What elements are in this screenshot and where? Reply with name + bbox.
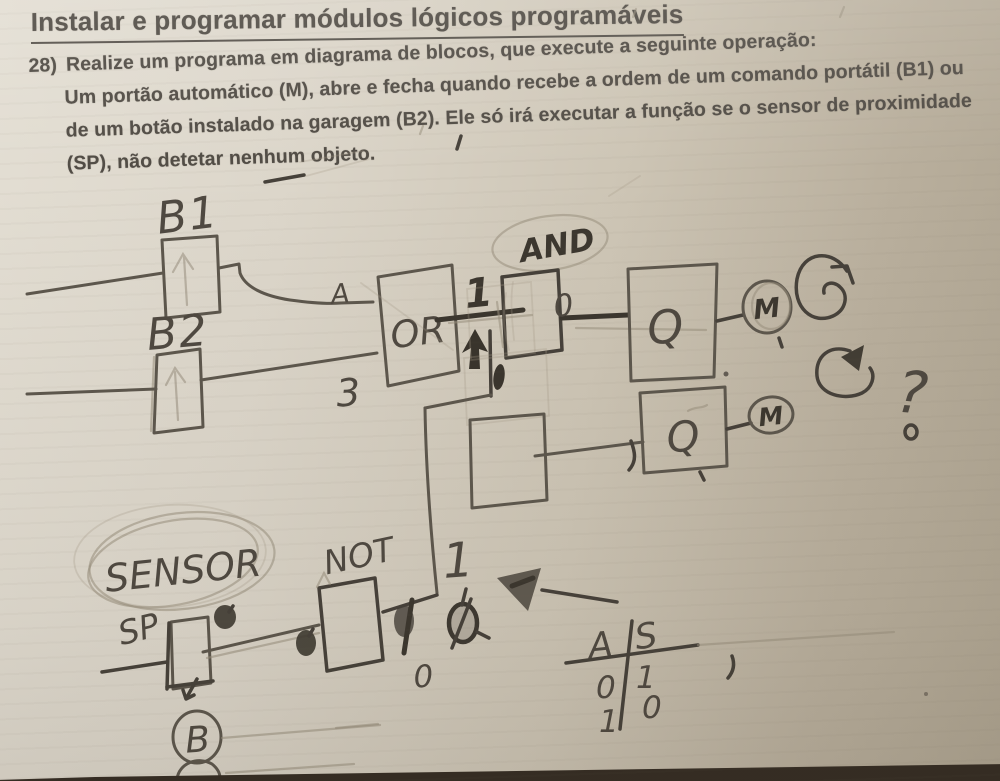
not-output-zero-label: 0 xyxy=(412,658,434,695)
bold-up-arrow-icon xyxy=(462,329,488,369)
stray-faint-3 xyxy=(609,176,640,196)
stray-tick-1 xyxy=(420,126,423,134)
stray-dash xyxy=(265,175,304,182)
b-circle-label: B xyxy=(184,719,212,762)
stray-tick-3 xyxy=(633,9,636,17)
or-input-a-label: A xyxy=(327,278,351,311)
m1-tick xyxy=(779,338,782,347)
stray-faint-1 xyxy=(306,159,369,176)
stray-tick-2 xyxy=(457,136,461,149)
and-second-input-wire xyxy=(490,331,491,396)
left-arrow-tail xyxy=(542,590,617,602)
sp-down-arrow-icon xyxy=(183,679,197,699)
question-mark: ? xyxy=(894,358,931,428)
branch-jog-wire xyxy=(425,395,491,408)
clockwise-arrowhead-icon xyxy=(832,266,853,283)
b1-arrow-icon xyxy=(173,254,193,305)
second-circle-line xyxy=(226,764,354,773)
q1-label: Q xyxy=(645,299,686,356)
empty-block xyxy=(470,414,547,508)
and-label: AND xyxy=(514,221,598,270)
m1-label: M xyxy=(752,292,782,326)
stray-faint-2 xyxy=(300,151,363,162)
b1-input-group: B1 A xyxy=(27,186,373,318)
hand-drawn-diagram: B1 A B2 3 OR xyxy=(0,0,1000,781)
truth-table-r2a: 1 xyxy=(599,704,619,740)
branch-wire-group: 1 xyxy=(425,395,491,593)
truth-table-hline-extension xyxy=(698,632,894,645)
b2-input-group: B2 3 xyxy=(27,305,377,433)
not-label: NOT xyxy=(320,529,400,582)
q2-input-hook xyxy=(629,441,635,470)
and-output-label: 0 xyxy=(552,287,575,325)
stray-dot-2 xyxy=(924,692,928,696)
m2-label: M xyxy=(757,401,785,432)
left-arrowhead-icon xyxy=(497,568,541,611)
and-output-wire-ghost xyxy=(576,328,706,330)
worksheet-photo: Instalar e programar módulos lógicos pro… xyxy=(0,0,1000,781)
sensor-label: SENSOR xyxy=(103,541,264,601)
comma-mark xyxy=(728,656,734,678)
sp-label: SP xyxy=(114,605,163,653)
branch-one-label: 1 xyxy=(441,532,475,590)
photo-bottom-edge xyxy=(0,764,1000,781)
second-row-group: Q M xyxy=(470,387,795,508)
q2-squiggle xyxy=(688,405,707,411)
q1-output-wire xyxy=(717,315,743,321)
b2-arrow-icon xyxy=(166,368,185,420)
truth-table-r1a: 0 xyxy=(596,670,616,706)
or-to-and-wire-group: 1 xyxy=(437,269,532,396)
b1-wire-left xyxy=(27,273,163,294)
block-to-q2-wire xyxy=(535,442,643,456)
stray-dot-1 xyxy=(724,372,729,377)
rotation-doodles-group: ? xyxy=(796,256,930,439)
truth-table-r2s: 0 xyxy=(642,690,662,726)
stray-tick-4 xyxy=(840,7,844,17)
b1-wire-to-or xyxy=(219,264,373,303)
or-gate-group: OR xyxy=(361,265,459,386)
b2-wire-left xyxy=(27,389,156,394)
or-label: OR xyxy=(388,308,448,357)
truth-table-hline xyxy=(566,645,698,663)
sp-block-left-edge xyxy=(167,623,169,689)
not-block xyxy=(319,578,383,671)
circled-b-group: B xyxy=(173,711,380,779)
q2-output-wire xyxy=(727,423,751,429)
q1-output-group: Q M xyxy=(628,264,791,381)
branch-vertical-wire xyxy=(425,408,437,593)
left-arrow-group xyxy=(497,568,617,611)
dark-scribble-2-tail xyxy=(477,632,489,638)
truth-table-group: A S 0 1 1 0 xyxy=(566,616,894,740)
sensor-row-group: SENSOR SP NOT xyxy=(71,498,437,699)
sp-wire-left xyxy=(102,662,167,672)
q2-label: Q xyxy=(665,411,702,463)
q2-tick xyxy=(700,472,704,480)
junction-dot-2 xyxy=(296,630,316,656)
truth-table-vline xyxy=(620,621,632,729)
or-input-b-label: 3 xyxy=(335,370,362,416)
question-mark-dot xyxy=(905,425,917,439)
pencil-blob xyxy=(492,363,507,390)
